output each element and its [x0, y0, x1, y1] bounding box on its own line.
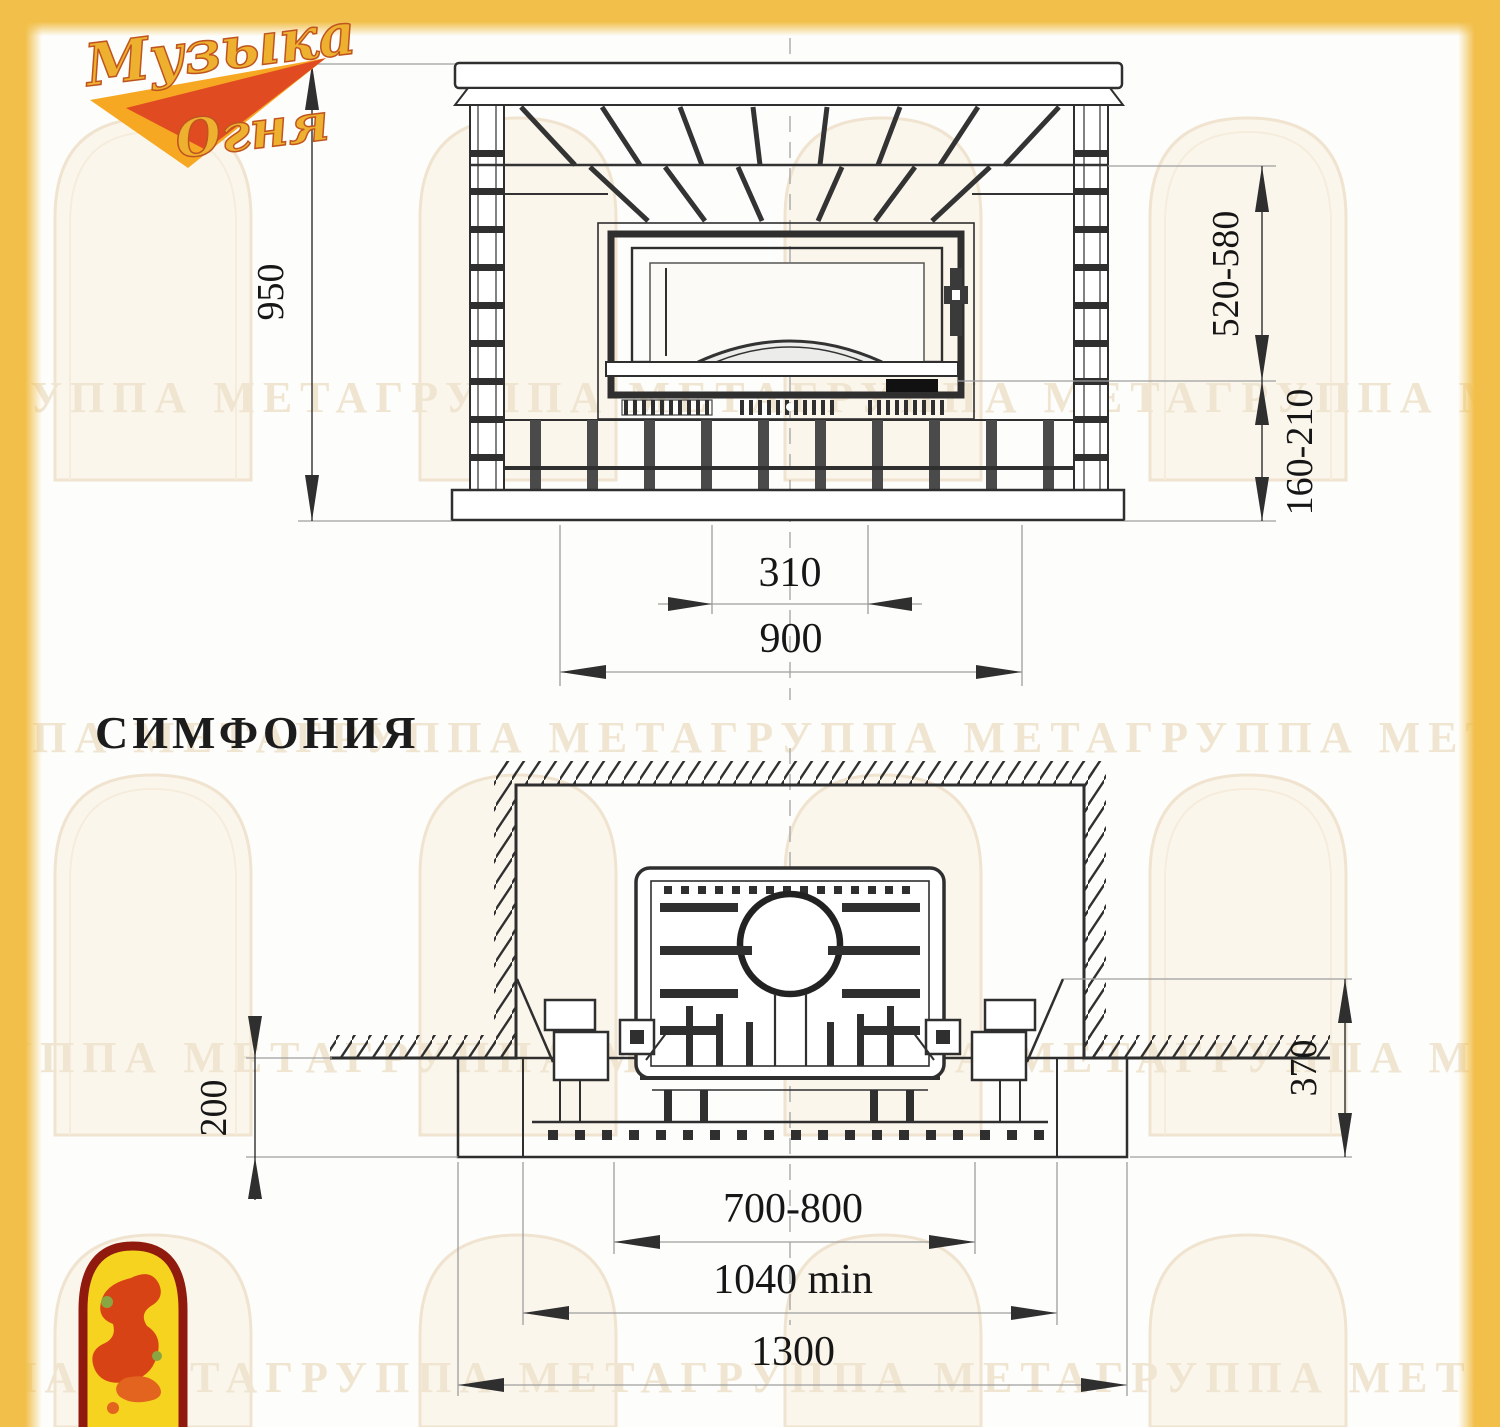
dim-niche-min-width-label: 1040 min	[713, 1257, 873, 1303]
right-pilaster	[1074, 105, 1108, 490]
mantel-flare	[455, 88, 1123, 105]
dim-base-total-width-label: 1300	[751, 1329, 835, 1375]
front-view: 950 520-580 160-210	[250, 38, 1321, 700]
firebox-insert-plan	[620, 868, 960, 1122]
dim-overall-height-label: 950	[250, 264, 292, 321]
door-ledge	[606, 362, 958, 376]
dim-side-wall-depth-label: 370	[1283, 1040, 1325, 1097]
page: ГРУППА МЕТАГРУППА МЕТАГРУППА МЕТАГРУППА …	[0, 0, 1500, 1427]
dim-body-width-label: 900	[760, 616, 823, 662]
left-pilaster	[470, 105, 504, 490]
model-title: СИМФОНИЯ	[95, 707, 419, 758]
dim-firebox-opening-height-label: 520-580	[1205, 211, 1247, 338]
firebox-portal	[598, 223, 974, 419]
plan-view: 200 370 700-800	[193, 748, 1352, 1396]
dim-hearth-gap-height: 160-210	[1124, 381, 1321, 521]
apron	[504, 420, 1074, 490]
flue-outlet-circle	[740, 894, 840, 994]
vent-grille	[622, 400, 944, 415]
dim-side-wall-depth: 370	[1063, 979, 1352, 1157]
dim-hearth-gap-height-label: 160-210	[1279, 389, 1321, 516]
dim-firebox-opening-height: 520-580	[958, 166, 1276, 381]
base-slab	[452, 490, 1124, 520]
latch-block	[886, 379, 938, 392]
fireplace-dimension-drawing: 950 520-580 160-210	[0, 0, 1500, 1427]
left-cheek	[517, 979, 608, 1122]
hearth-tile-dots	[548, 1130, 1044, 1140]
flame-arch-emblem	[73, 1238, 193, 1427]
dim-hearth-front-depth-label: 200	[193, 1080, 235, 1137]
brick-frieze	[470, 107, 1108, 221]
mantel-shelf	[455, 63, 1122, 88]
dim-insert-opening-width-label: 700-800	[723, 1186, 863, 1232]
right-cheek	[972, 979, 1063, 1122]
muzyka-ognya-logo: Музыка Огня	[28, 0, 358, 200]
dim-insert-opening-width: 700-800	[614, 1162, 975, 1254]
dim-ash-niche-width-label: 310	[759, 550, 822, 596]
